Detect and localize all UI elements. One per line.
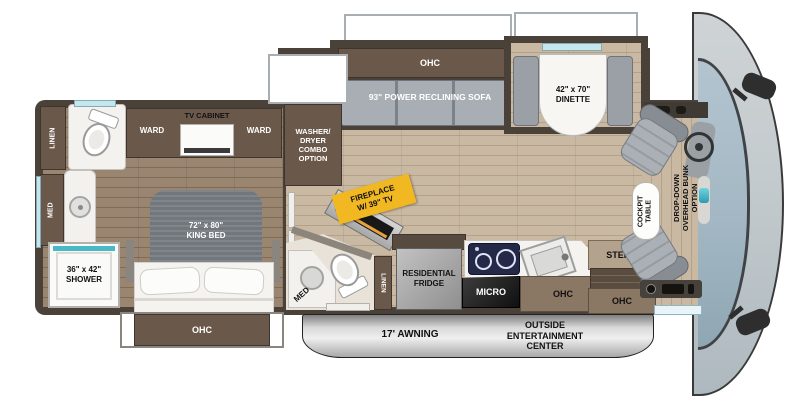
steering-hub: [695, 143, 703, 151]
cockpit-table: COCKPIT TABLE: [632, 182, 660, 240]
dinette-bench-left: [513, 56, 539, 126]
outside-ent-label-wrap: OUTSIDE ENTERTAINMENT CENTER: [478, 316, 612, 356]
entry-door-sill: [654, 305, 702, 315]
sofa-label: 93" POWER RECLINING SOFA: [369, 92, 492, 102]
rv-floorplan: OHC 93" POWER RECLINING SOFA 42" x 70" D…: [0, 0, 800, 408]
micro-label: MICRO: [476, 287, 506, 298]
awning-label: 17' AWNING: [381, 329, 438, 341]
rear-linen-cabinet: LINEN: [40, 106, 66, 170]
washer-dryer-label: WASHER/ DRYER COMBO OPTION: [295, 127, 330, 163]
bed-overhead-cabinet: OHC: [134, 314, 270, 346]
rear-window: [36, 176, 41, 248]
mid-window-box: [268, 54, 348, 104]
dinette-bench-right: [607, 56, 633, 126]
dinette-label: 42" x 70" DINETTE: [556, 85, 590, 104]
rear-med-label: MED: [48, 202, 56, 218]
entry-ohc-label: OHC: [612, 296, 632, 307]
rear-bath-window: [74, 100, 116, 107]
bed-pillow-right: [203, 266, 264, 295]
cockpit-table-label: COCKPIT TABLE: [638, 195, 655, 227]
sofa-slide-topper: [344, 14, 512, 42]
ward-right-label: WARD: [247, 126, 271, 136]
king-bed-label-wrap: 72" x 80" KING BED: [150, 216, 262, 246]
fridge: RESIDENTIAL FRIDGE: [396, 248, 462, 310]
drop-down-bunk-label: DROP-DOWN OVERHEAD BUNK OPTION: [672, 165, 699, 231]
dinette-table: 42" x 70" DINETTE: [539, 54, 607, 136]
washer-dryer-cabinet: WASHER/ DRYER COMBO OPTION: [284, 104, 342, 186]
drop-down-bunk-label-wrap: DROP-DOWN OVERHEAD BUNK OPTION: [671, 151, 699, 245]
bed-ohc-label: OHC: [192, 325, 212, 336]
tv-cabinet-label: TV CABINET: [185, 111, 230, 120]
sofa-label-wrap: 93" POWER RECLINING SOFA: [340, 88, 520, 106]
microwave: MICRO: [462, 276, 520, 308]
bed-pillow-left: [139, 266, 200, 295]
ward-left: WARD: [128, 124, 176, 138]
mid-linen-label: LINEN: [379, 273, 387, 293]
ward-left-label: WARD: [140, 126, 164, 136]
rear-vanity-faucet: [78, 205, 83, 210]
outside-ent-label: OUTSIDE ENTERTAINMENT CENTER: [507, 320, 583, 352]
rear-linen-label: LINEN: [49, 127, 57, 148]
awning-label-wrap: 17' AWNING: [340, 328, 480, 342]
mid-linen-cabinet: LINEN: [374, 256, 392, 310]
galley-ohc-label: OHC: [553, 289, 573, 300]
dash-bottom-panel: [640, 280, 702, 298]
shower-label-wrap: 36" x 42" SHOWER: [48, 260, 120, 290]
tv-cabinet: [180, 124, 234, 156]
king-bed-label: 72" x 80" KING BED: [186, 221, 225, 240]
dinette-window: [542, 43, 602, 51]
sofa-overhead-cabinet: OHC: [338, 48, 522, 78]
ward-right: WARD: [236, 124, 282, 138]
dinette-slide-topper: [514, 12, 638, 38]
bedroom-door-panel-1: [288, 192, 295, 228]
tv-cabinet-label-wrap: TV CABINET: [172, 109, 242, 122]
shower-label: 36" x 42" SHOWER: [66, 265, 102, 284]
sofa-ohc-label: OHC: [420, 58, 440, 69]
mid-bath-sill: [326, 303, 370, 311]
cooktop: [468, 243, 520, 275]
bed-post-left: [126, 240, 134, 282]
rear-med-cabinet: MED: [40, 174, 64, 246]
bed-fold-line: [134, 298, 274, 301]
fridge-label: RESIDENTIAL FRIDGE: [402, 269, 455, 288]
console-cup: [699, 188, 709, 203]
